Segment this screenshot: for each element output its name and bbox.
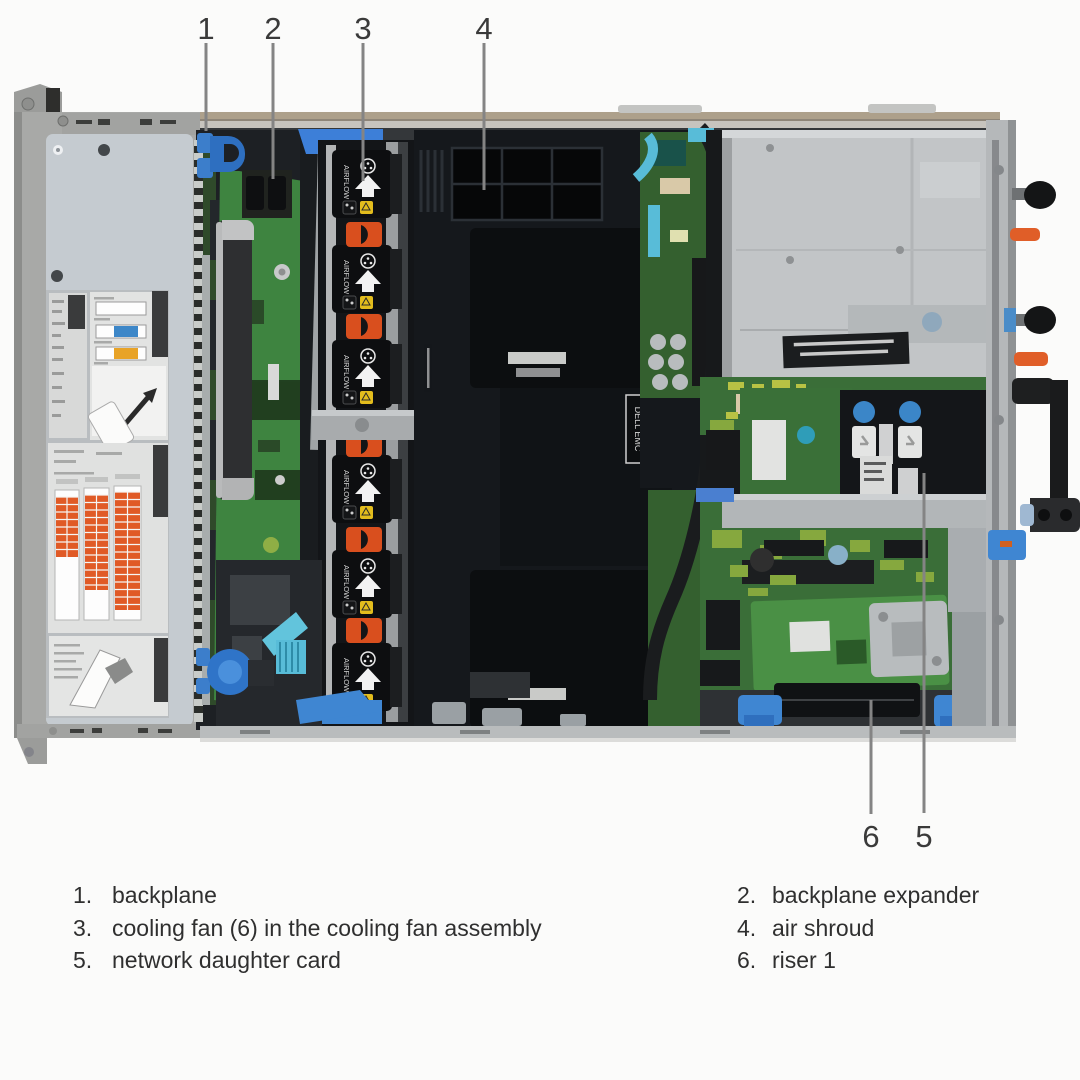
svg-text:AIRFLOW: AIRFLOW [342,470,351,505]
svg-text:AIRFLOW: AIRFLOW [342,260,351,295]
svg-text:AIRFLOW: AIRFLOW [342,355,351,390]
svg-text:AIRFLOW: AIRFLOW [342,165,351,200]
svg-text:AIRFLOW: AIRFLOW [342,658,351,693]
svg-text:AIRFLOW: AIRFLOW [342,565,351,600]
